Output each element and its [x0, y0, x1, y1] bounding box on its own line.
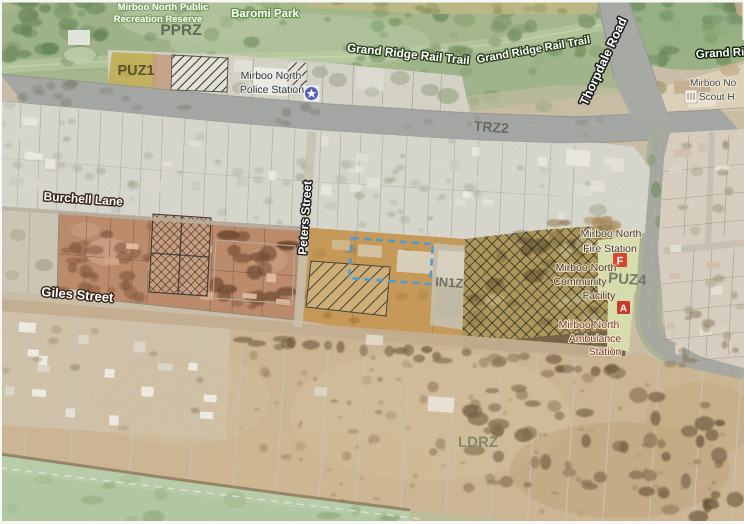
svg-text:Mirboo North: Mirboo North: [556, 262, 617, 274]
svg-text:PPRZ: PPRZ: [160, 22, 202, 39]
svg-text:PUZ1: PUZ1: [117, 63, 154, 79]
svg-text:F: F: [617, 256, 624, 268]
svg-text:TRZ2: TRZ2: [473, 118, 509, 136]
svg-text:Ambulance: Ambulance: [569, 333, 622, 345]
svg-text:Fire Station: Fire Station: [583, 243, 637, 255]
svg-text:LDRZ: LDRZ: [458, 434, 498, 451]
svg-text:IN1Z: IN1Z: [435, 274, 464, 291]
svg-text:Mirboo North: Mirboo North: [241, 70, 302, 82]
svg-text:Mirboo No: Mirboo No: [690, 78, 737, 89]
svg-text:Mirboo North: Mirboo North: [559, 319, 620, 331]
svg-text:A: A: [620, 304, 627, 315]
svg-text:Police Station: Police Station: [240, 84, 304, 96]
svg-text:Facility: Facility: [583, 290, 616, 302]
svg-text:Scout H: Scout H: [699, 92, 735, 103]
svg-text:Community: Community: [553, 276, 607, 288]
svg-text:Mirboo North: Mirboo North: [581, 228, 642, 240]
svg-text:Station: Station: [589, 346, 622, 358]
svg-text:Baromi Park: Baromi Park: [231, 8, 299, 20]
svg-text:Mirboo North Public: Mirboo North Public: [118, 2, 209, 13]
svg-text:Grand Ridge: Grand Ridge: [696, 45, 744, 61]
